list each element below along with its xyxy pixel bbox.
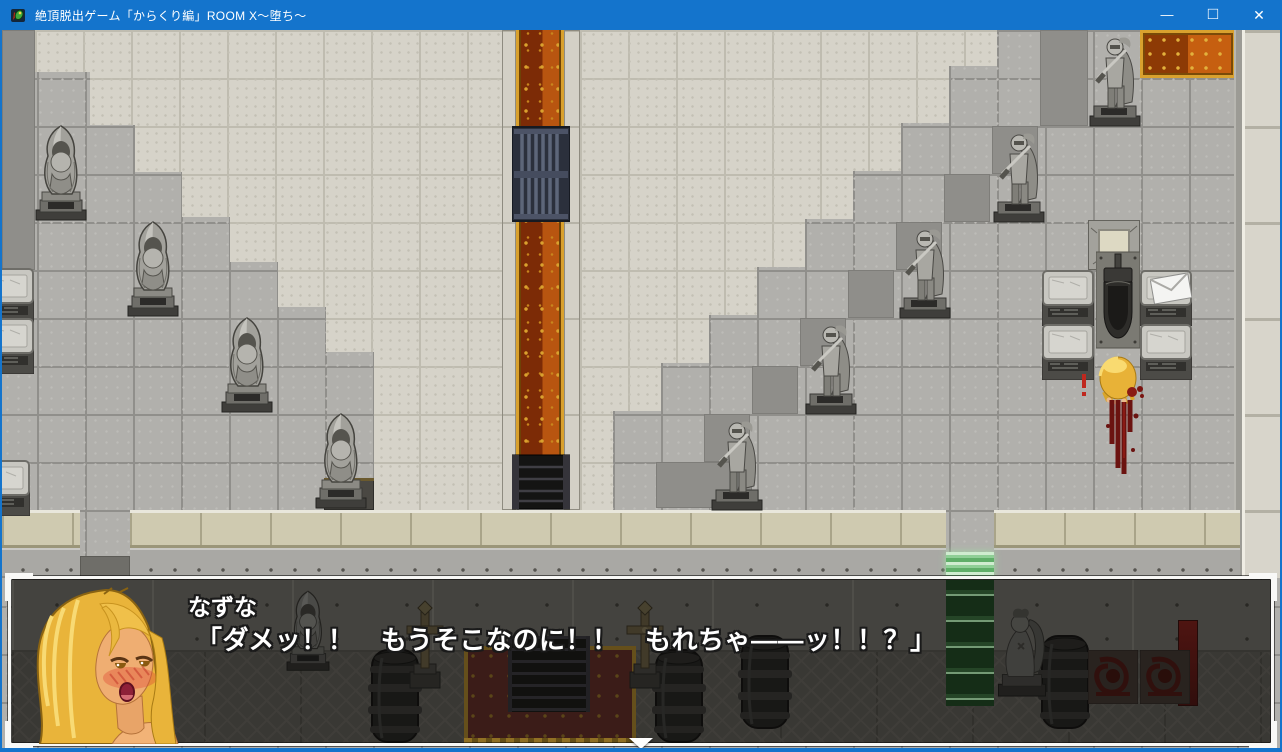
corridor-border [564, 30, 580, 510]
glowing-green-door [946, 552, 994, 578]
stone-pedestal [2, 268, 34, 324]
dark-stairs [512, 454, 570, 510]
knight-statue [896, 222, 954, 320]
dialogue-text: 「ダメッ！！ もうそこなのに！！ もれちゃ――ッ！！？」 [196, 620, 936, 657]
bottom-wall-ledge [994, 510, 1240, 548]
bottom-wall-face [994, 548, 1240, 578]
portrait-nazuna [16, 586, 196, 744]
monk-statue [310, 410, 372, 510]
shadow-tiles [848, 270, 894, 318]
close-button[interactable]: ✕ [1236, 0, 1282, 30]
bottom-wall-face [130, 548, 946, 578]
right-wall-column [1242, 30, 1280, 578]
envelope-item [1150, 272, 1192, 304]
frame-corner-ornament [1249, 721, 1277, 748]
red-carpet-top-right [1140, 30, 1236, 78]
frame-corner-ornament [1249, 573, 1277, 601]
blood-splatter [1124, 382, 1148, 402]
maximize-button[interactable]: □ [1190, 0, 1236, 30]
shadow-tiles [752, 366, 798, 414]
stone-pedestal [1042, 270, 1094, 326]
knight-statue [708, 414, 766, 512]
continue-indicator-icon[interactable] [629, 738, 653, 748]
monk-statue [122, 218, 184, 318]
corridor-border [502, 30, 516, 510]
blood-trail [1100, 398, 1144, 476]
knight-statue [1086, 30, 1144, 128]
red-exclamation-mark [1078, 374, 1090, 398]
bottom-wall-ledge [130, 510, 946, 548]
shadow-tiles [1040, 30, 1088, 126]
doorway-left [80, 556, 130, 578]
metal-grate [512, 126, 570, 222]
red-carpet-corridor [516, 30, 564, 508]
knight-statue [802, 318, 860, 416]
stone-pedestal [1042, 324, 1094, 380]
stone-pedestal [2, 318, 34, 374]
game-window: 絶頂脱出ゲーム「からくり編」ROOM X～堕ち～ — □ ✕ [0, 0, 1282, 752]
game-area[interactable]: なずな 「ダメッ！！ もうそこなのに！！ もれちゃ――ッ！！？」 [2, 30, 1280, 748]
monk-statue [30, 122, 92, 222]
raised-platform-left [35, 30, 502, 510]
right-wall-edge [1234, 30, 1242, 578]
window-title: 絶頂脱出ゲーム「からくり編」ROOM X～堕ち～ [35, 7, 307, 24]
shadow-tiles [944, 174, 990, 222]
game-icon [10, 7, 26, 23]
toilet [1096, 246, 1140, 352]
title-bar[interactable]: 絶頂脱出ゲーム「からくり編」ROOM X～堕ち～ — □ ✕ [0, 0, 1282, 30]
speaker-name: なずな [188, 588, 257, 622]
knight-statue [990, 126, 1048, 224]
stone-pedestal [2, 460, 30, 516]
stone-pedestal [1140, 324, 1192, 380]
minimize-button[interactable]: — [1144, 0, 1190, 30]
monk-statue [216, 314, 278, 414]
